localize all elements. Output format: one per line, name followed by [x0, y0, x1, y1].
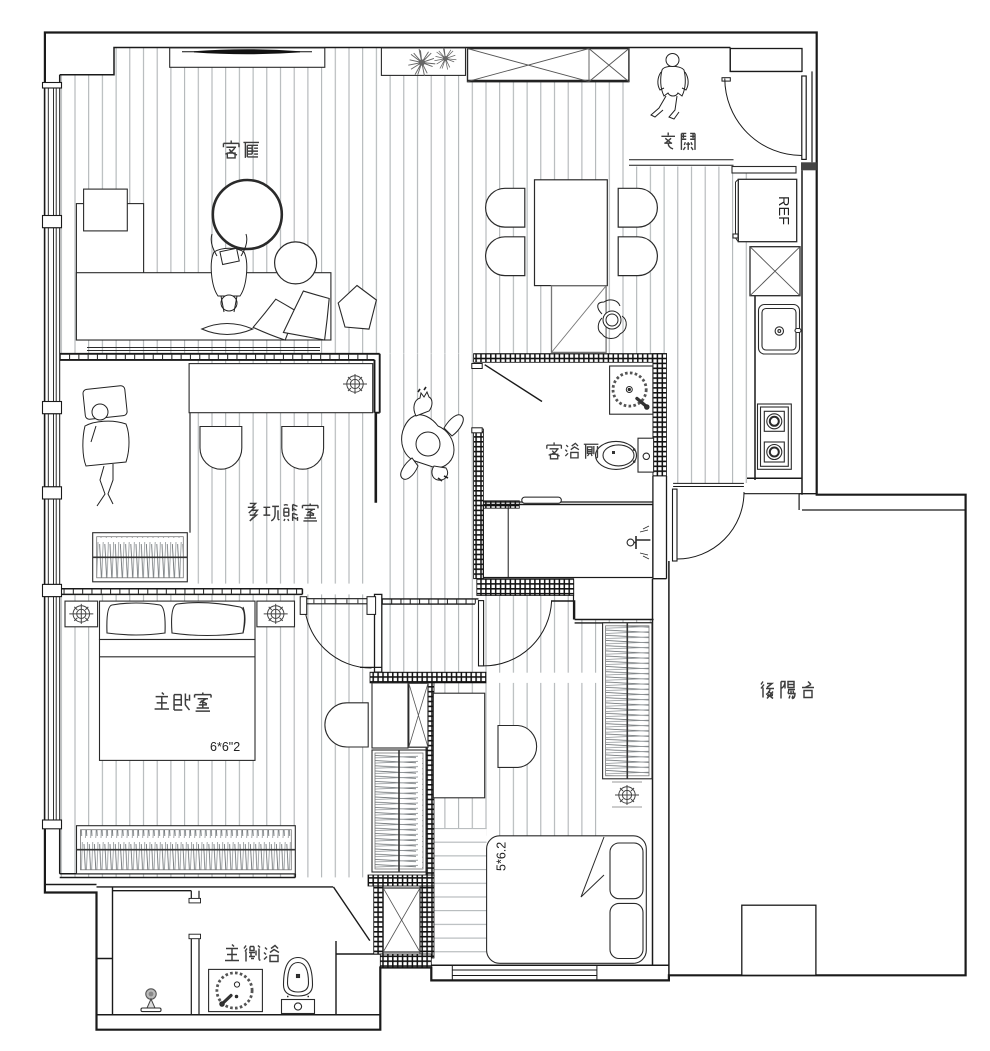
svg-text:5*6.2: 5*6.2	[495, 842, 509, 871]
svg-text:6*6"2: 6*6"2	[210, 740, 240, 754]
svg-text:REF: REF	[775, 196, 791, 225]
